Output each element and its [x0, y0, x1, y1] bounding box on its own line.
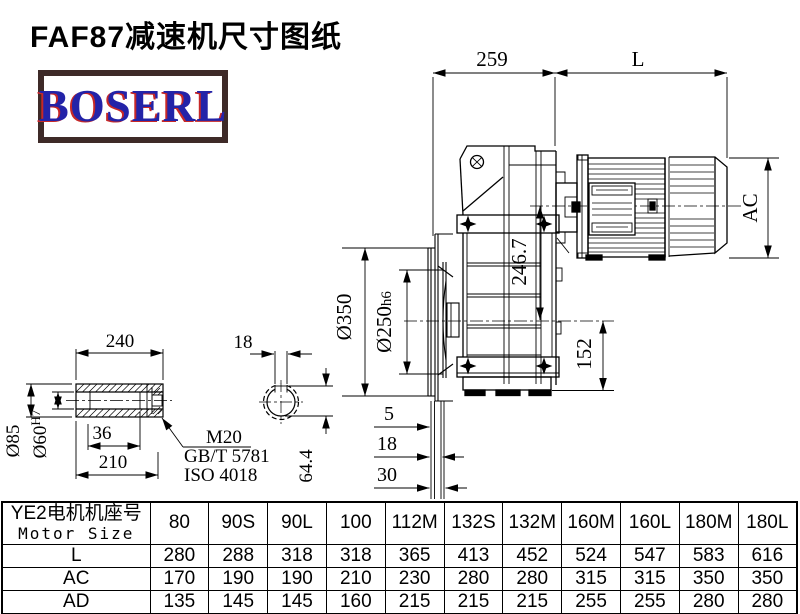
dim-label-210: 210 [99, 452, 128, 473]
table-cell: 160 [326, 590, 385, 614]
table-cell: 318 [268, 544, 327, 567]
table-row-L: L 280 288 318 318 365 413 452 524 547 58… [2, 544, 797, 567]
motor-dimension-table: YE2电机机座号 Motor Size 80 90S 90L 100 112M … [1, 501, 798, 614]
table-cell: 280 [679, 590, 738, 614]
table-row-AD: AD 135 145 145 160 215 215 215 255 255 2… [2, 590, 797, 614]
dim-label-152: 152 [572, 338, 596, 370]
column-header-180L: 180L [738, 502, 797, 544]
table-cell: 315 [621, 567, 680, 590]
dim-label-L: L [632, 47, 645, 71]
table-cell: 280 [444, 567, 503, 590]
row-label-AD: AD [2, 590, 150, 614]
table-cell: 215 [444, 590, 503, 614]
row-label-L: L [2, 544, 150, 567]
table-cell: 190 [268, 567, 327, 590]
table-cell: 547 [621, 544, 680, 567]
column-header-160L: 160L [621, 502, 680, 544]
table-cell: 215 [503, 590, 562, 614]
column-header-112M: 112M [385, 502, 444, 544]
column-header-160M: 160M [562, 502, 621, 544]
dim-label-key-depth: 64.4 [296, 449, 317, 483]
dim-label-d250: Ø250h6 [372, 291, 396, 353]
table-cell: 583 [679, 544, 738, 567]
table-cell: 288 [209, 544, 268, 567]
table-row-AC: AC 170 190 190 210 230 280 280 315 315 3… [2, 567, 797, 590]
dim-label-d250-tol: h6 [379, 291, 395, 307]
standard-label-iso: ISO 4018 [184, 465, 257, 486]
motor-size-header: YE2电机机座号 Motor Size [2, 502, 150, 544]
table-cell: 135 [150, 590, 209, 614]
table-cell: 524 [562, 544, 621, 567]
dim-label-d60-tol: H7 [28, 409, 43, 425]
table-cell: 190 [209, 567, 268, 590]
table-cell: 145 [209, 590, 268, 614]
thread-label: M20 [206, 427, 242, 448]
column-header-180M: 180M [679, 502, 738, 544]
table-cell: 255 [621, 590, 680, 614]
dim-label-30: 30 [377, 464, 397, 486]
column-header-132S: 132S [444, 502, 503, 544]
dim-label-246-7: 246.7 [507, 238, 531, 285]
table-cell: 230 [385, 567, 444, 590]
table-cell: 616 [738, 544, 797, 567]
motor-size-header-en: Motor Size [3, 524, 150, 543]
table-cell: 280 [150, 544, 209, 567]
table-cell: 215 [385, 590, 444, 614]
column-header-90L: 90L [268, 502, 327, 544]
dim-label-d60-value: Ø60 [30, 426, 51, 459]
dim-label-5: 5 [384, 403, 394, 425]
motor [556, 155, 727, 260]
output-flange [428, 234, 459, 499]
table-cell: 350 [679, 567, 738, 590]
column-header-80: 80 [150, 502, 209, 544]
table-cell: 280 [738, 590, 797, 614]
dim-labels-5-18-30: 5 18 30 [377, 403, 397, 486]
dim-label-d250-value: Ø250 [372, 306, 396, 353]
dim-label-AC: AC [738, 193, 762, 222]
dim-label-18: 18 [377, 433, 397, 455]
table-cell: 315 [562, 567, 621, 590]
motor-size-header-cn: YE2电机机座号 [3, 503, 150, 524]
page: FAF87减速机尺寸图纸 BOSERL [0, 0, 800, 614]
table-cell: 350 [738, 567, 797, 590]
standard-label-gb: GB/T 5781 [184, 446, 270, 467]
table-cell: 318 [326, 544, 385, 567]
technical-drawing: 259 L AC 246.7 152 Ø350 Ø250h6 [0, 0, 800, 500]
table-cell: 255 [562, 590, 621, 614]
dim-label-259: 259 [476, 47, 508, 71]
dim-label-36: 36 [93, 423, 112, 444]
table-cell: 210 [326, 567, 385, 590]
table-cell: 170 [150, 567, 209, 590]
table-cell: 280 [503, 567, 562, 590]
column-header-90S: 90S [209, 502, 268, 544]
table-cell: 365 [385, 544, 444, 567]
shaft-section-view [259, 380, 303, 424]
row-label-AC: AC [2, 567, 150, 590]
table-cell: 452 [503, 544, 562, 567]
column-header-132M: 132M [503, 502, 562, 544]
table-cell: 413 [444, 544, 503, 567]
centerlines [66, 206, 744, 401]
dim-label-240: 240 [106, 331, 135, 352]
table-header-row: YE2电机机座号 Motor Size 80 90S 90L 100 112M … [2, 502, 797, 544]
dim-label-d350: Ø350 [332, 294, 356, 341]
dim-labels-top: 259 L [476, 47, 644, 71]
column-header-100: 100 [326, 502, 385, 544]
dim-label-d85: Ø85 [3, 425, 24, 458]
table-cell: 145 [268, 590, 327, 614]
dim-label-key-width: 18 [234, 332, 253, 353]
